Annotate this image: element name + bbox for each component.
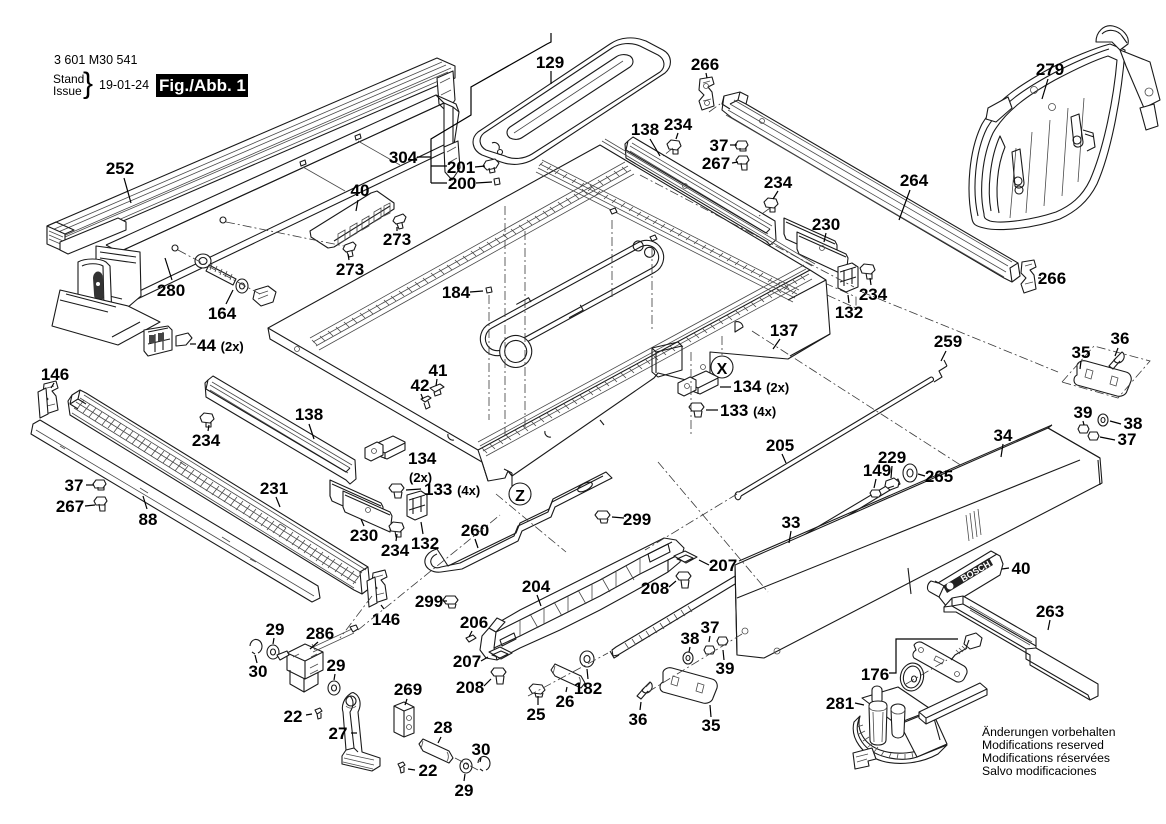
svg-text:37: 37 [710,136,729,155]
svg-text:138: 138 [295,405,323,424]
svg-text:25: 25 [527,705,546,724]
svg-text:266: 266 [1038,269,1066,288]
svg-text:39: 39 [1074,403,1093,422]
svg-text:27: 27 [329,724,348,743]
svg-text:38: 38 [681,629,700,648]
svg-text:37: 37 [1118,430,1137,449]
svg-text:149: 149 [863,461,891,480]
svg-text:41: 41 [429,361,448,380]
svg-text:40: 40 [1012,559,1031,578]
svg-text:Modifications réservées: Modifications réservées [982,751,1110,765]
svg-text:129: 129 [536,53,564,72]
svg-text:30: 30 [472,740,491,759]
svg-text:252: 252 [106,159,134,178]
svg-text:208: 208 [456,678,484,697]
svg-text:234: 234 [192,431,221,450]
svg-text:Modifications reserved: Modifications reserved [982,738,1104,752]
svg-text:3 601 M30 541: 3 601 M30 541 [54,53,137,67]
svg-text:133 (4x): 133 (4x) [424,480,480,499]
svg-text:29: 29 [327,656,346,675]
svg-text:207: 207 [709,556,737,575]
svg-text:205: 205 [766,436,794,455]
svg-text:281: 281 [826,694,854,713]
svg-text:30: 30 [249,662,268,681]
svg-text:Salvo modificaciones: Salvo modificaciones [982,764,1096,778]
svg-text:299: 299 [415,592,443,611]
svg-text:Änderungen vorbehalten: Änderungen vorbehalten [982,725,1116,739]
svg-text:234: 234 [764,173,793,192]
svg-text:234: 234 [381,541,410,560]
svg-text:35: 35 [702,716,721,735]
svg-text:37: 37 [65,476,84,495]
svg-text:273: 273 [383,230,411,249]
svg-text:Issue: Issue [53,84,82,98]
svg-text:Z: Z [515,488,525,505]
svg-text:132: 132 [411,534,439,553]
svg-text:208: 208 [641,579,669,598]
svg-text:37: 37 [701,618,720,637]
svg-text:286: 286 [306,624,334,643]
svg-text:39: 39 [716,659,735,678]
svg-text:279: 279 [1036,60,1064,79]
svg-text:35: 35 [1072,343,1091,362]
svg-text:266: 266 [691,55,719,74]
svg-text:137: 137 [770,321,798,340]
svg-text:280: 280 [157,281,185,300]
svg-text:146: 146 [41,365,69,384]
svg-text:Fig./Abb. 1: Fig./Abb. 1 [159,76,246,95]
svg-text:42: 42 [411,376,430,395]
svg-text:40: 40 [351,181,370,200]
svg-text:230: 230 [812,215,840,234]
svg-text:138: 138 [631,120,659,139]
svg-text:200: 200 [448,174,476,193]
svg-text:230: 230 [350,526,378,545]
svg-text:29: 29 [266,620,285,639]
svg-text:259: 259 [934,332,962,351]
svg-text:22: 22 [284,707,303,726]
svg-text:299: 299 [623,510,651,529]
svg-text:132: 132 [835,303,863,322]
svg-text:19-01-24: 19-01-24 [99,78,149,92]
svg-text:265: 265 [925,467,953,486]
svg-text:176: 176 [861,665,889,684]
svg-text:26: 26 [556,692,575,711]
svg-text:207: 207 [453,652,481,671]
svg-text:234: 234 [664,115,693,134]
svg-text:44 (2x): 44 (2x) [197,336,244,355]
svg-text:36: 36 [629,710,648,729]
svg-text:134: 134 [408,449,437,468]
svg-text:182: 182 [574,679,602,698]
svg-text:269: 269 [394,680,422,699]
svg-text:133 (4x): 133 (4x) [720,401,776,420]
svg-text:}: } [83,67,93,100]
svg-text:273: 273 [336,260,364,279]
svg-text:267: 267 [56,497,84,516]
svg-text:204: 204 [522,577,551,596]
svg-text:134 (2x): 134 (2x) [733,377,789,396]
svg-text:263: 263 [1036,602,1064,621]
svg-text:28: 28 [434,718,453,737]
svg-text:146: 146 [372,610,400,629]
svg-text:267: 267 [702,154,730,173]
svg-text:36: 36 [1111,329,1130,348]
svg-text:33: 33 [782,513,801,532]
svg-text:22: 22 [419,761,438,780]
svg-text:260: 260 [461,521,489,540]
svg-text:206: 206 [460,613,488,632]
svg-text:29: 29 [455,781,474,800]
svg-text:304: 304 [389,148,418,167]
svg-text:88: 88 [139,510,158,529]
svg-text:184: 184 [442,283,471,302]
svg-text:X: X [717,361,728,378]
svg-text:34: 34 [994,426,1013,445]
svg-text:231: 231 [260,479,288,498]
svg-text:164: 164 [208,304,237,323]
svg-text:264: 264 [900,171,929,190]
